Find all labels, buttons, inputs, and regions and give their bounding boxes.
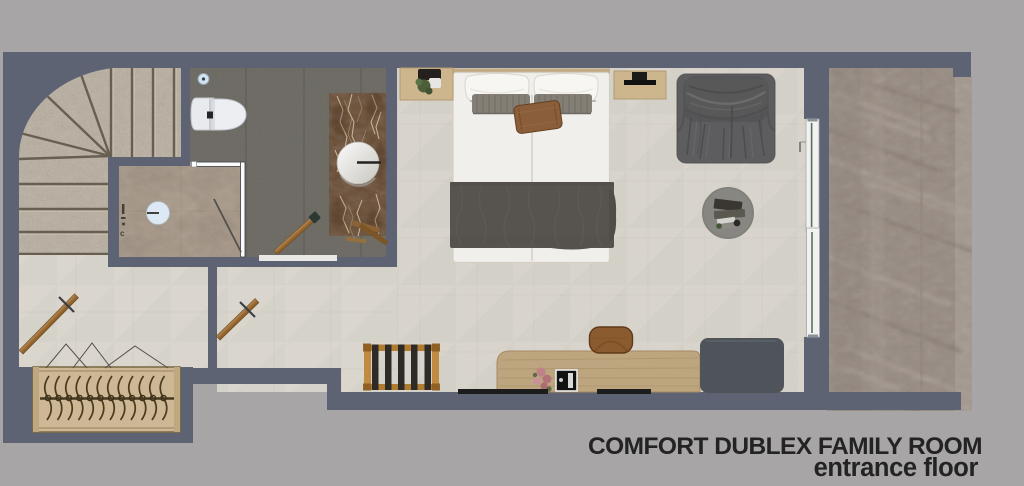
svg-text:c: c bbox=[120, 229, 125, 238]
svg-text:entrance floor: entrance floor bbox=[814, 454, 979, 482]
